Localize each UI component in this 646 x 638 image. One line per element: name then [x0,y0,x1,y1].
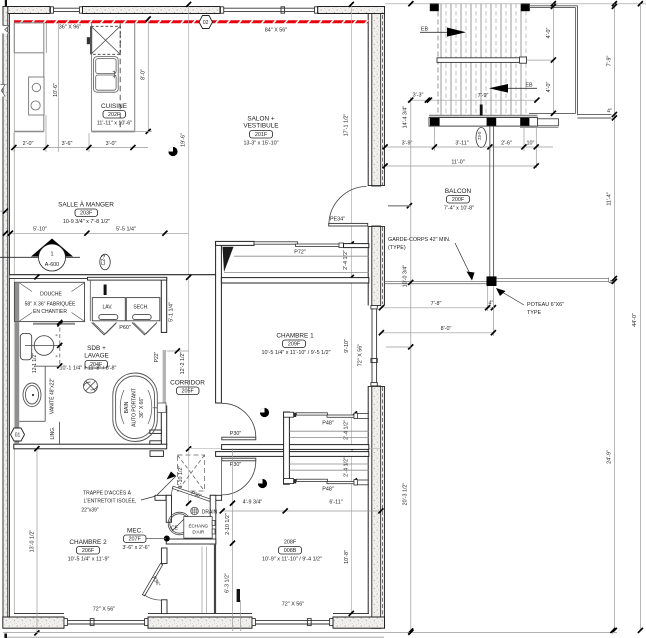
svg-text:P60": P60" [119,325,131,331]
svg-text:DOUCHE: DOUCHE [40,292,62,298]
svg-text:36" X 66": 36" X 66" [139,397,145,418]
svg-text:4": 4" [489,301,494,307]
svg-text:7'-4" x 10'-8": 7'-4" x 10'-8" [444,206,474,212]
svg-text:CORRIDOR: CORRIDOR [170,380,205,387]
svg-text:72" X 56": 72" X 56" [358,344,364,366]
svg-text:TRAPPE D'ACCÈS À: TRAPPE D'ACCÈS À [83,490,132,497]
svg-text:2'-4 1/2": 2'-4 1/2" [344,420,350,440]
svg-text:6'-11": 6'-11" [329,500,342,506]
svg-text:205F: 205F [182,389,195,395]
svg-text:EN CHANTIER: EN CHANTIER [33,309,67,315]
svg-text:11'-0": 11'-0" [451,159,464,165]
svg-text:9'-10": 9'-10" [344,339,350,353]
svg-text:72" X 56": 72" X 56" [93,607,115,613]
svg-text:209F: 209F [288,342,301,348]
svg-text:02: 02 [203,20,209,26]
svg-text:(TYPE): (TYPE) [388,245,406,251]
svg-text:72" X 56": 72" X 56" [282,602,304,608]
svg-text:01: 01 [15,433,21,439]
svg-text:DRAIN: DRAIN [202,510,218,516]
svg-text:12'-2 1/2": 12'-2 1/2" [180,352,186,375]
svg-text:LAV.: LAV. [102,305,112,311]
svg-text:10'-5 1/4" x 11'-9": 10'-5 1/4" x 11'-9" [68,557,110,563]
svg-text:3'-6" x 2'-6": 3'-6" x 2'-6" [122,545,149,551]
svg-text:LING.: LING. [50,426,56,439]
svg-text:5'-5 1/4": 5'-5 1/4" [116,227,136,233]
svg-text:11'-4": 11'-4" [607,192,613,205]
svg-text:L'ENTRETOIT ISOLÉE,: L'ENTRETOIT ISOLÉE, [84,498,137,505]
svg-text:10'-1 1/4" x 11'-8" / 8'-8": 10'-1 1/4" x 11'-8" / 8'-8" [60,366,117,372]
svg-text:MEC.: MEC. [127,528,143,535]
svg-text:3'-3": 3'-3" [413,93,424,99]
svg-text:200F: 200F [452,197,465,203]
svg-text:P22": P22" [154,351,160,362]
svg-text:20'-3 1/2": 20'-3 1/2" [403,483,409,506]
svg-text:24'-9": 24'-9" [607,450,613,464]
svg-text:10'-0 3/4": 10'-0 3/4" [403,265,409,288]
svg-text:201F: 201F [255,132,268,138]
svg-text:13-3" x 15'-10": 13-3" x 15'-10" [243,141,278,147]
svg-text:GARDE-CORPS 42" MIN.: GARDE-CORPS 42" MIN. [388,237,450,243]
svg-text:POTEAU 6"X6": POTEAU 6"X6" [527,302,564,308]
svg-text:10'-9" x 11'-10" / 9'-4 1/2": 10'-9" x 11'-10" / 9'-4 1/2" [262,557,322,563]
svg-text:10'-8": 10'-8" [344,550,350,564]
svg-text:22"x39": 22"x39" [81,508,98,514]
svg-text:TYPE: TYPE [527,310,541,316]
svg-text:P48": P48" [322,487,334,493]
svg-text:11'-11" x 10'-6": 11'-11" x 10'-6" [97,121,132,127]
svg-text:1: 1 [51,252,54,258]
svg-text:P30": P30" [230,431,242,437]
svg-text:VANITÉ 48"x22": VANITÉ 48"x22" [49,378,56,414]
svg-text:207F: 207F [129,537,142,543]
svg-text:ÉCHANG: ÉCHANG [188,523,208,529]
svg-text:5'-1 1/4": 5'-1 1/4" [169,302,175,322]
svg-text:P48": P48" [322,421,334,427]
svg-text:13'-0 1/2": 13'-0 1/2" [30,530,36,553]
svg-text:10'-5 1/4" x 11'-10" / 9'-5 1/: 10'-5 1/4" x 11'-10" / 9'-5 1/2" [262,350,331,356]
svg-text:CHAMBRE 1: CHAMBRE 1 [276,333,314,340]
svg-text:SECH.: SECH. [133,305,148,311]
svg-text:8'-0": 8'-0" [141,69,147,80]
svg-text:C2-1: C2-1 [101,254,107,265]
svg-text:23-5: 23-5 [477,131,482,140]
svg-text:EB: EB [525,83,533,89]
svg-text:BAIN: BAIN [124,401,130,413]
svg-text:6'-3 1/2": 6'-3 1/2" [225,573,231,593]
svg-text:4'-9 3/4": 4'-9 3/4" [243,500,263,506]
svg-text:SALON +: SALON + [247,116,274,123]
svg-text:3'-10 1/2": 3'-10 1/2" [178,466,184,489]
svg-text:VESTIBULE: VESTIBULE [243,123,278,130]
svg-text:7'-8": 7'-8" [431,301,442,307]
svg-text:EB: EB [421,27,429,33]
svg-text:AUTO PORTANT: AUTO PORTANT [132,388,138,427]
svg-text:2'-4 1/2": 2'-4 1/2" [343,250,349,270]
svg-text:5'-10": 5'-10" [33,227,47,233]
svg-text:3'-11": 3'-11" [455,140,468,146]
svg-text:84" X 56": 84" X 56" [265,28,287,34]
svg-text:10-9 3/4" x 7'-8 1/2": 10-9 3/4" x 7'-8 1/2" [63,219,110,225]
svg-text:208F: 208F [284,540,297,546]
svg-text:LAVAGE: LAVAGE [84,353,109,360]
svg-text:2'-0": 2'-0" [23,141,34,147]
svg-text:4'-0": 4'-0" [546,28,552,39]
svg-text:4": 4" [607,109,612,115]
svg-text:206F: 206F [82,548,95,554]
svg-text:17'-1 1/2": 17'-1 1/2" [344,114,350,137]
svg-text:58" X 36" FABRIQUÉE: 58" X 36" FABRIQUÉE [25,301,76,308]
svg-text:SALLE À MANGER: SALLE À MANGER [58,200,114,209]
svg-text:10": 10" [527,140,535,146]
svg-text:P30": P30" [230,462,242,468]
svg-text:202F: 202F [108,112,121,118]
svg-text:3'-6": 3'-6" [62,141,73,147]
svg-text:203F: 203F [80,211,93,217]
svg-text:3'-0": 3'-0" [106,141,117,147]
svg-text:CUISINE: CUISINE [101,103,127,110]
svg-text:PE34": PE34" [330,217,345,223]
svg-text:2'-6": 2'-6" [501,140,512,146]
svg-text:P72": P72" [294,250,306,256]
svg-text:4'-0": 4'-0" [546,82,552,93]
svg-text:14'-4 3/4": 14'-4 3/4" [403,106,409,129]
svg-text:44'-0": 44'-0" [632,313,638,327]
svg-text:SDB +: SDB + [87,345,106,352]
svg-text:D'AIR: D'AIR [192,530,205,535]
svg-text:8'-0": 8'-0" [441,326,452,332]
svg-text:10'-6": 10'-6" [53,83,59,97]
svg-text:008B: 008B [284,548,297,554]
svg-text:7'-9": 7'-9" [607,56,613,67]
svg-text:19'-6": 19'-6" [181,133,187,147]
svg-text:36" X 96": 36" X 96" [59,25,81,31]
svg-text:2-10 1/2": 2-10 1/2" [225,513,231,535]
svg-text:A-600: A-600 [45,262,59,268]
svg-text:7'-9": 7'-9" [478,93,489,99]
svg-text:12-1 1/2": 12-1 1/2" [32,353,38,373]
svg-text:CE: CE [171,526,179,532]
svg-text:2'-4 1/2": 2'-4 1/2" [344,457,350,477]
svg-text:CHAMBRE 2: CHAMBRE 2 [69,539,107,546]
svg-text:BALCON: BALCON [445,188,472,195]
svg-text:4": 4" [609,280,614,286]
